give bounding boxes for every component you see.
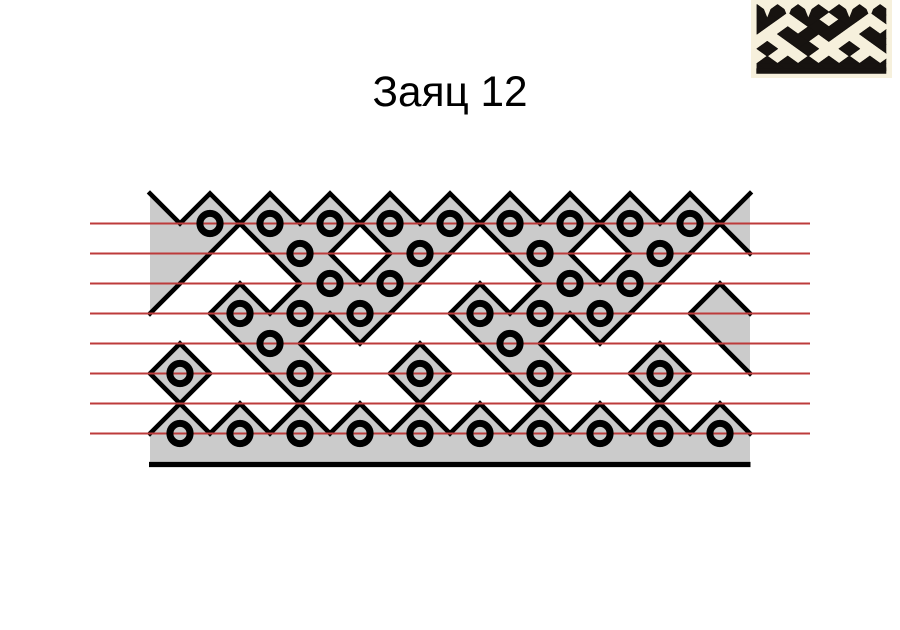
svg-text:Заяц 12: Заяц 12 [373, 68, 528, 115]
